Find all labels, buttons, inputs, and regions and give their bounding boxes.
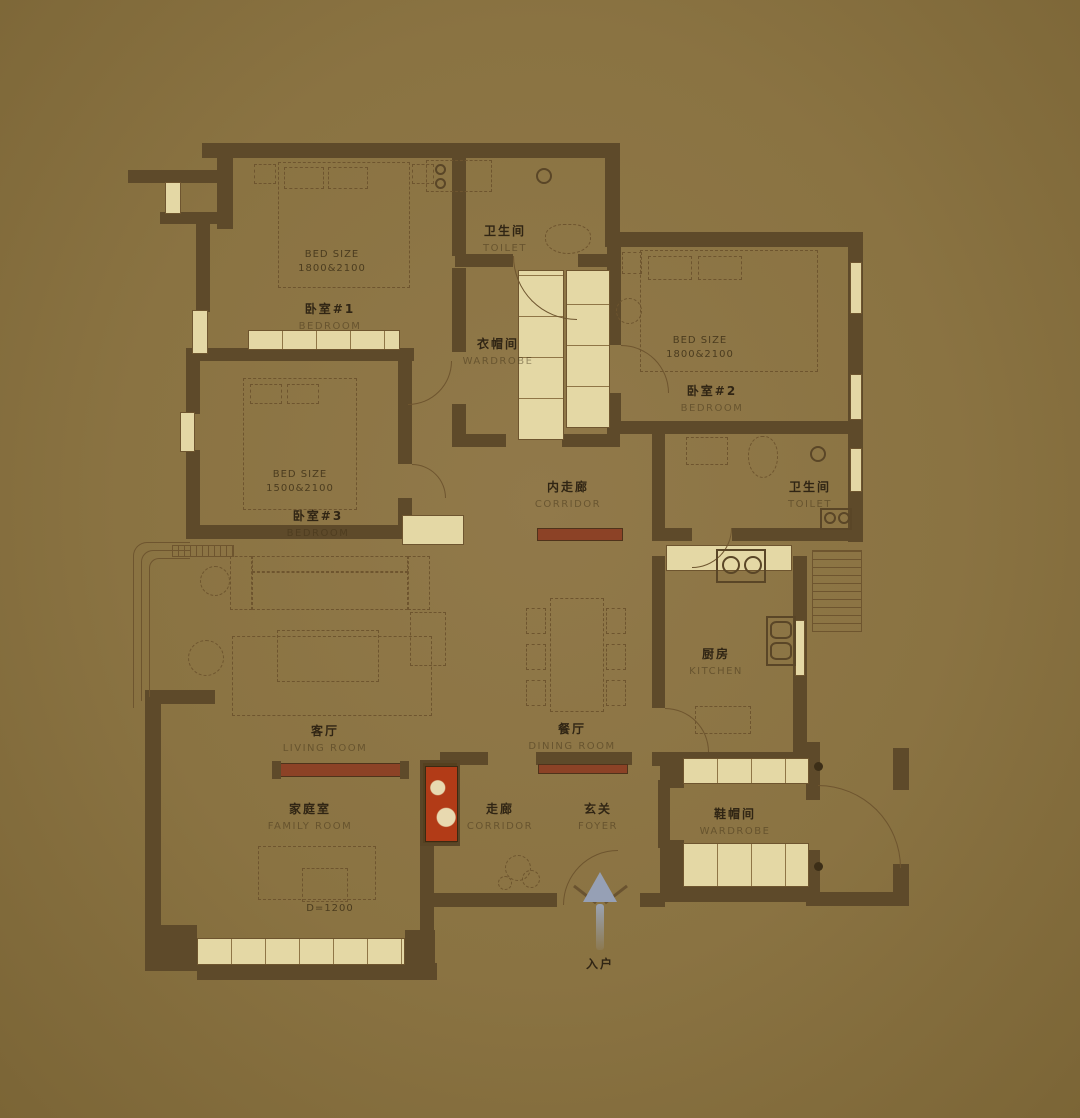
burner <box>744 556 762 574</box>
room-label-zh: 卫生间 <box>483 222 527 239</box>
sofa-armrest <box>408 556 430 610</box>
wall-segment <box>562 434 620 447</box>
room-label-zh: 卧室#2 <box>681 382 744 399</box>
room-label-inner-corridor: 内走廊 CORRIDOR <box>535 478 601 510</box>
window-band <box>180 412 195 452</box>
room-label-zh: 餐厅 <box>528 720 615 737</box>
wall-segment <box>605 232 863 247</box>
bed-size-line: 1800&2100 <box>298 262 366 276</box>
room-label-en: FAMILY ROOM <box>268 821 353 832</box>
room-label-en: CORRIDOR <box>535 499 601 510</box>
room-label-en: TOILET <box>788 499 832 510</box>
room-label-toilet2: 卫生间 TOILET <box>788 478 832 510</box>
wall-segment <box>652 556 665 708</box>
room-label-en: BEDROOM <box>681 403 744 414</box>
pillow <box>250 384 282 404</box>
pillow <box>328 167 368 189</box>
sideboard-cap <box>400 761 409 779</box>
sofa-back <box>252 556 408 572</box>
table-diameter-note: D=1200 <box>306 902 354 916</box>
room-label-zh: 卧室#3 <box>287 507 350 524</box>
bed-size-line: 1500&2100 <box>266 482 334 496</box>
room-label-toilet1: 卫生间 TOILET <box>483 222 527 254</box>
wall-segment <box>660 758 684 788</box>
dining-table <box>550 598 604 712</box>
entry-arrow-stem <box>596 904 604 950</box>
room-label-zh: 内走廊 <box>535 478 601 495</box>
washer-dial <box>824 512 836 524</box>
wall-segment <box>652 434 665 532</box>
wall-segment <box>197 963 437 980</box>
fridge <box>695 706 751 734</box>
wall-segment <box>806 892 909 906</box>
window-band <box>795 620 805 676</box>
room-label-zh: 家庭室 <box>268 800 353 817</box>
room-label-zh: 厨房 <box>689 645 743 662</box>
pillow <box>284 167 324 189</box>
room-label-zh: 玄关 <box>578 800 618 817</box>
room-label-corridor: 走廊 CORRIDOR <box>467 800 533 832</box>
room-label-en: BEDROOM <box>299 321 362 332</box>
bed-size-line: BED SIZE <box>266 468 334 482</box>
tv-sideboard <box>278 763 404 777</box>
hall-cabinet <box>402 515 464 545</box>
room-label-bedroom1: 卧室#1 BEDROOM <box>299 300 362 332</box>
plant <box>498 876 512 890</box>
door-hinge <box>814 762 823 771</box>
wall-segment <box>652 528 692 541</box>
wall-segment <box>202 143 620 158</box>
dining-chair <box>606 680 626 706</box>
wall-segment <box>186 352 200 414</box>
wall-segment <box>658 780 670 848</box>
room-label-en: BEDROOM <box>287 528 350 539</box>
burner <box>722 556 740 574</box>
room-label-en: FOYER <box>578 821 618 832</box>
door-arc <box>412 464 446 498</box>
dining-sideboard <box>538 764 628 774</box>
dining-chair <box>526 644 546 670</box>
room-label-en: LIVING ROOM <box>283 743 368 754</box>
door-arc <box>408 361 452 405</box>
room-label-family-room: 家庭室 FAMILY ROOM <box>268 800 353 832</box>
bed-size-line: 1800&2100 <box>666 348 734 362</box>
display-cabinet <box>425 766 458 842</box>
room-label-bedroom2: 卧室#2 BEDROOM <box>681 382 744 414</box>
shower-head <box>810 446 826 462</box>
room-label-kitchen: 厨房 KITCHEN <box>689 645 743 677</box>
wall-segment <box>196 222 210 312</box>
nightstand <box>254 164 276 184</box>
ac-platform <box>812 550 862 632</box>
window-band <box>192 310 208 354</box>
family-table-inner <box>302 868 348 902</box>
window-band <box>850 374 862 420</box>
shoe-cabinet <box>683 758 809 784</box>
room-label-zh: 卫生间 <box>788 478 832 495</box>
steps-hatch <box>172 545 234 557</box>
window-band <box>850 448 862 492</box>
basin <box>435 178 446 189</box>
room-label-bedroom3: 卧室#3 BEDROOM <box>287 507 350 539</box>
bed-size-note: BED SIZE 1500&2100 <box>266 468 334 495</box>
pillow <box>648 256 692 280</box>
plant <box>616 298 642 324</box>
sink-bowl <box>770 621 792 639</box>
pillow <box>698 256 742 280</box>
room-label-shoe-wardrobe: 鞋帽间 WARDROBE <box>700 805 771 837</box>
window-band <box>850 262 862 314</box>
room-label-en: CORRIDOR <box>467 821 533 832</box>
room-label-en: WARDROBE <box>463 356 534 367</box>
sideboard-cap <box>272 761 281 779</box>
room-label-zh: 衣帽间 <box>463 335 534 352</box>
room-label-en: KITCHEN <box>689 666 743 677</box>
floor-plan-canvas: 卧室#1 BEDROOM 卫生间 TOILET 衣帽间 WARDROBE 卧室#… <box>0 0 1080 1118</box>
basin <box>435 164 446 175</box>
plant <box>200 566 230 596</box>
wall-segment <box>145 690 161 930</box>
washer-dial <box>838 512 850 524</box>
room-label-foyer: 玄关 FOYER <box>578 800 618 832</box>
sofa-armrest <box>230 556 252 610</box>
bed-size-line: BED SIZE <box>666 334 734 348</box>
shoe-cabinet <box>683 843 809 887</box>
wall-segment <box>145 925 197 971</box>
room-label-zh: 客厅 <box>283 722 368 739</box>
side-table <box>188 640 224 676</box>
room-label-walkin-wardrobe: 衣帽间 WARDROBE <box>463 335 534 367</box>
window-band <box>165 182 181 214</box>
sink-bowl <box>770 642 792 660</box>
wall-segment <box>426 893 557 907</box>
pillow <box>287 384 319 404</box>
toilet-fixture <box>545 224 591 254</box>
bay-window-lines <box>149 558 190 697</box>
room-label-en: WARDROBE <box>700 826 771 837</box>
wall-segment <box>452 434 506 447</box>
entry-arrow-icon <box>583 872 617 902</box>
bed-size-note: BED SIZE 1800&2100 <box>666 334 734 361</box>
room-label-dining-room: 餐厅 DINING ROOM <box>528 720 615 752</box>
wall-segment <box>640 893 665 907</box>
dining-chair <box>526 608 546 634</box>
corridor-console <box>537 528 623 541</box>
closet-bedroom1 <box>248 330 400 350</box>
dining-chair <box>606 608 626 634</box>
plant <box>522 870 540 888</box>
wall-segment <box>607 421 862 434</box>
shower-head <box>536 168 552 184</box>
wall-segment <box>893 748 909 790</box>
entry-label-text: 入户 <box>586 955 614 972</box>
room-label-en: DINING ROOM <box>528 741 615 752</box>
window-band <box>197 938 405 965</box>
wall-segment <box>405 930 435 970</box>
toilet-fixture <box>748 436 778 478</box>
room-label-living-room: 客厅 LIVING ROOM <box>283 722 368 754</box>
door-hinge <box>814 862 823 871</box>
wall-segment <box>660 840 684 890</box>
rug <box>232 636 432 716</box>
basin-cabinet <box>686 437 728 465</box>
bed-size-note: BED SIZE 1800&2100 <box>298 248 366 275</box>
room-label-en: TOILET <box>483 243 527 254</box>
room-label-zh: 鞋帽间 <box>700 805 771 822</box>
wall-segment <box>455 254 513 267</box>
dining-chair <box>606 644 626 670</box>
room-label-zh: 卧室#1 <box>299 300 362 317</box>
room-label-zh: 走廊 <box>467 800 533 817</box>
entry-label: 入户 <box>586 955 614 972</box>
bed-size-line: BED SIZE <box>298 248 366 262</box>
dining-chair <box>526 680 546 706</box>
lobby-door-arc <box>818 785 901 868</box>
nightstand <box>622 252 642 274</box>
sofa-seat <box>252 572 408 610</box>
